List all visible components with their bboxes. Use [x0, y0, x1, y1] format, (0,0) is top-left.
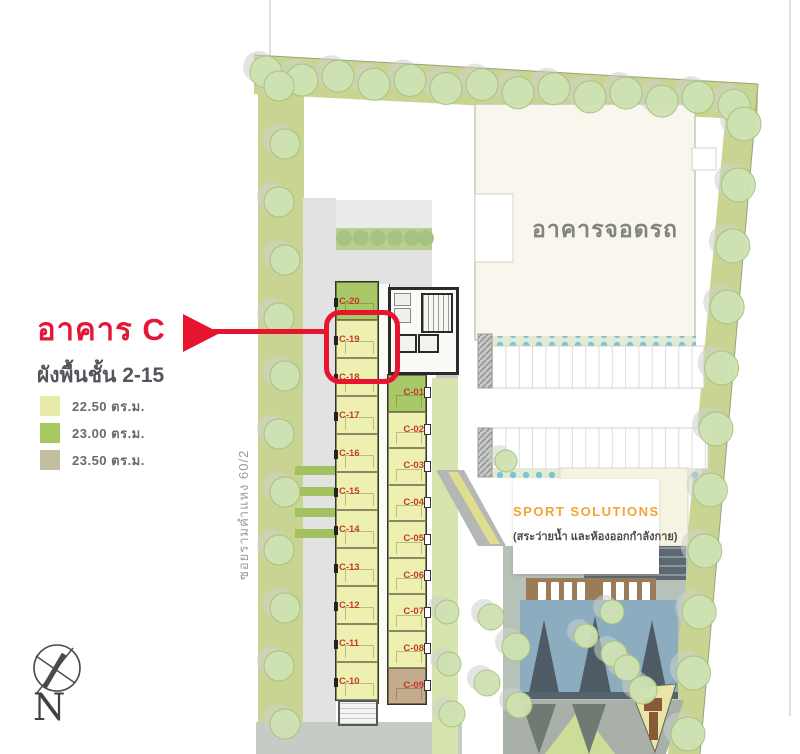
legend-item: 22.50 ตร.ม. — [40, 396, 145, 416]
unit-cell-C-10: C-10 — [336, 662, 378, 700]
driveway — [303, 198, 336, 754]
tower-wing-east: C-01C-02C-03C-04C-05C-06C-07C-08C-09 — [388, 375, 426, 704]
sport-card-subtitle: (สระว่ายน้ำ และห้องออกกำลังกาย) — [513, 527, 659, 545]
legend-label: 22.50 ตร.ม. — [72, 396, 145, 417]
unit-label-C-17: C-17 — [339, 410, 360, 421]
unit-cell-C-13: C-13 — [336, 548, 378, 586]
unit-label-C-01: C-01 — [403, 387, 424, 398]
parking-kiosk — [692, 148, 716, 170]
legend-label: 23.50 ตร.ม. — [72, 450, 145, 471]
core-room — [394, 293, 411, 306]
unit-label-C-16: C-16 — [339, 448, 360, 459]
highlight-box-C-19 — [324, 310, 400, 384]
unit-label-C-05: C-05 — [403, 533, 424, 544]
unit-label-C-08: C-08 — [403, 643, 424, 654]
unit-cell-C-16: C-16 — [336, 434, 378, 472]
entry-walk — [336, 200, 432, 230]
legend-item: 23.50 ตร.ม. — [40, 450, 145, 470]
parking-stalls-row1 — [492, 346, 704, 388]
unit-label-C-06: C-06 — [403, 570, 424, 581]
sport-card-title: SPORT SOLUTIONS — [513, 504, 659, 519]
unit-label-C-02: C-02 — [403, 424, 424, 435]
unit-cell-C-06: C-06 — [388, 558, 426, 595]
unit-cell-C-09: C-09 — [388, 668, 426, 705]
unit-label-C-04: C-04 — [403, 497, 424, 508]
elevator-icon — [418, 334, 439, 353]
parking-building-label: อาคารจอดรถ — [495, 212, 715, 248]
legend-item: 23.00 ตร.ม. — [40, 423, 145, 443]
unit-cell-C-14: C-14 — [336, 510, 378, 548]
unit-cell-C-11: C-11 — [336, 624, 378, 662]
unit-label-C-14: C-14 — [339, 524, 360, 535]
unit-label-C-07: C-07 — [403, 606, 424, 617]
road-label: ซอยรามคำแหง 60/2 — [233, 370, 254, 580]
unit-label-C-09: C-09 — [403, 680, 424, 691]
unit-cell-C-07: C-07 — [388, 594, 426, 631]
legend-swatch — [40, 396, 60, 416]
unit-label-C-11: C-11 — [339, 638, 359, 649]
sport-solutions-card: SPORT SOLUTIONS (สระว่ายน้ำ และห้องออกกำ… — [513, 479, 659, 574]
unit-cell-C-08: C-08 — [388, 631, 426, 668]
unit-cell-C-03: C-03 — [388, 448, 426, 485]
unit-cell-C-05: C-05 — [388, 521, 426, 558]
parking-stalls-row2 — [492, 428, 708, 469]
stair-icon — [421, 293, 453, 333]
shrub-row — [492, 336, 696, 346]
unit-label-C-13: C-13 — [339, 562, 360, 573]
exterior-stair — [338, 700, 378, 726]
unit-cell-C-15: C-15 — [336, 472, 378, 510]
floor-range-subtitle: ผังพื้นชั้น 2-15 — [37, 359, 164, 392]
building-title: อาคาร C — [37, 304, 166, 354]
unit-label-C-03: C-03 — [403, 460, 424, 471]
legend: 22.50 ตร.ม.23.00 ตร.ม.23.50 ตร.ม. — [40, 396, 145, 477]
unit-label-C-10: C-10 — [339, 676, 360, 687]
unit-label-C-15: C-15 — [339, 486, 360, 497]
unit-cell-C-17: C-17 — [336, 396, 378, 434]
callout-leader-line — [207, 329, 329, 334]
north-label: N — [33, 686, 65, 729]
stall-endcap — [478, 334, 492, 388]
legend-swatch — [40, 450, 60, 470]
legend-swatch — [40, 423, 60, 443]
unit-cell-C-02: C-02 — [388, 412, 426, 449]
unit-label-C-20: C-20 — [339, 296, 360, 307]
unit-cell-C-04: C-04 — [388, 485, 426, 522]
unit-label-C-12: C-12 — [339, 600, 360, 611]
legend-label: 23.00 ตร.ม. — [72, 423, 145, 444]
unit-cell-C-12: C-12 — [336, 586, 378, 624]
site-plan-page: { "callout": { "title": "อาคาร C", "subt… — [0, 0, 800, 754]
